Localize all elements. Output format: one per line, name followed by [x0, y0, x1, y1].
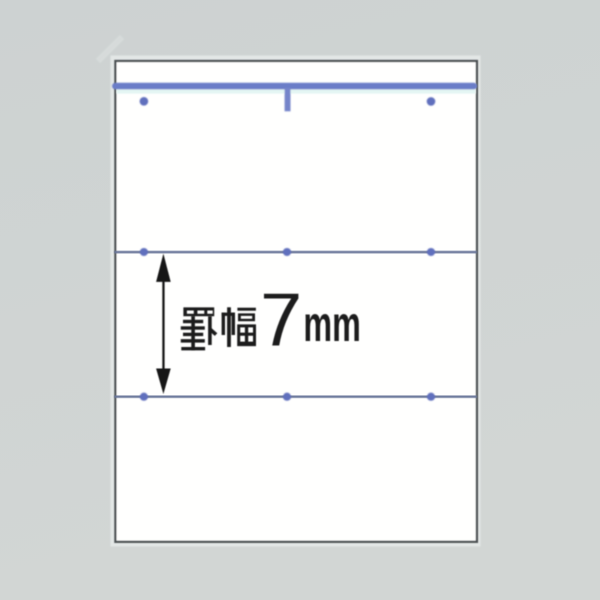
svg-text:mm: mm [303, 296, 360, 352]
